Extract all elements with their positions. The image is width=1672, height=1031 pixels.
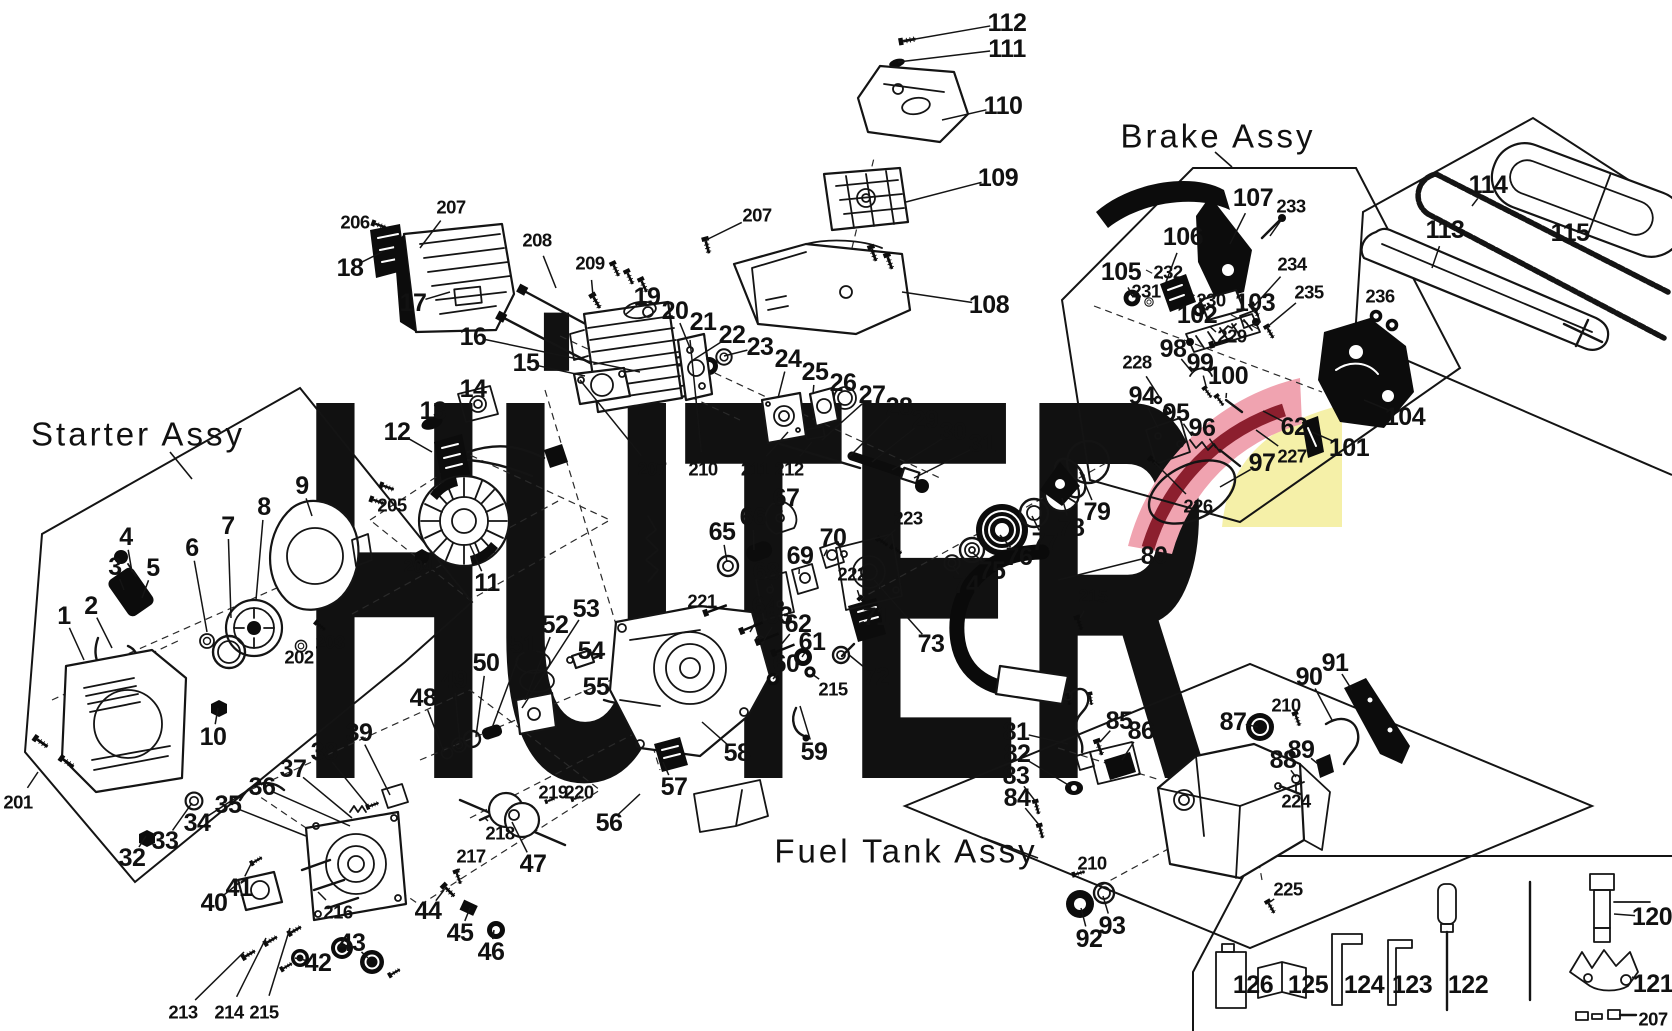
part-label-43: 43 [339, 929, 366, 957]
part-label-23: 23 [747, 333, 774, 361]
part-label-77: 77 [1032, 528, 1059, 556]
part-label-125: 125 [1288, 971, 1329, 999]
part-label-228: 228 [1122, 352, 1152, 373]
part-label-87: 87 [1220, 708, 1247, 736]
part-label-6: 6 [185, 534, 198, 562]
part-label-216: 216 [323, 902, 353, 923]
part-label-14: 14 [460, 375, 487, 403]
part-label-11: 11 [474, 569, 500, 597]
part-label-207: 207 [436, 197, 466, 218]
part-label-26: 26 [830, 369, 857, 397]
part-label-70: 70 [820, 524, 847, 552]
part-label-126: 126 [1233, 971, 1273, 999]
bracket-90 [1326, 719, 1358, 764]
part-label-20: 20 [662, 297, 689, 325]
part-label-27: 27 [859, 381, 886, 409]
part-label-51: 51 [510, 631, 537, 659]
part-label-210: 210 [1077, 853, 1107, 874]
part-label-84: 84 [1004, 784, 1031, 812]
part-label-86: 86 [1128, 717, 1155, 745]
part-label-35: 35 [215, 791, 242, 819]
nut-10 [211, 700, 227, 717]
part-label-107: 107 [1233, 184, 1273, 212]
leader-line-111 [898, 51, 990, 62]
part-label-40: 40 [201, 889, 228, 917]
part-label-226: 226 [1183, 496, 1213, 517]
part-label-209: 209 [575, 253, 605, 274]
part-label-12: 12 [384, 418, 411, 446]
part-label-3: 3 [108, 553, 121, 581]
leader-line-25 [813, 385, 814, 394]
clip-89 [1316, 754, 1334, 778]
part-label-30: 30 [940, 418, 967, 446]
part-label-32: 32 [119, 844, 146, 872]
starter-cover-1 [62, 650, 186, 792]
leader-line-112 [904, 26, 990, 41]
screws-207-toolbox [1576, 1010, 1636, 1020]
part-label-201: 201 [3, 792, 33, 813]
leader-line-207 [706, 222, 742, 240]
part-label-9: 9 [295, 472, 308, 500]
screw-213 [240, 948, 256, 961]
part-label-13: 13 [420, 397, 447, 425]
crankcase-half-35 [306, 812, 406, 920]
part-label-115: 115 [1551, 219, 1590, 247]
washer-6 [200, 634, 214, 648]
part-label-218: 218 [485, 823, 515, 844]
part-label-76: 76 [1006, 543, 1033, 571]
part-label-205: 205 [377, 495, 407, 516]
leader-line-8 [256, 520, 263, 600]
part-label-121: 121 [1633, 970, 1672, 998]
part-label-16: 16 [460, 323, 487, 351]
part-label-4: 4 [119, 523, 133, 551]
part-label-203: 203 [315, 632, 345, 653]
washers-236 [1370, 310, 1383, 323]
part-label-69: 69 [787, 542, 814, 570]
part-label-22: 22 [719, 321, 746, 349]
part-label-49: 49 [441, 666, 468, 694]
part-label-45: 45 [447, 919, 474, 947]
buffer-87 [1246, 713, 1274, 741]
part-label-62: 62 [1281, 413, 1308, 441]
part-label-215: 215 [1078, 586, 1108, 607]
part-label-38: 38 [311, 738, 338, 766]
part-label-217: 217 [456, 846, 486, 867]
leader-line-90 [1315, 688, 1332, 720]
part-label-80: 80 [1141, 542, 1168, 570]
part-label-112: 112 [988, 9, 1027, 37]
leader-line-35 [240, 810, 306, 836]
part-label-31: 31 [969, 430, 996, 458]
part-label-98: 98 [1160, 335, 1187, 363]
part-label-120: 120 [1632, 903, 1672, 931]
part-label-233: 233 [1276, 196, 1306, 217]
part-label-211: 211 [741, 459, 770, 480]
leader-line-1 [69, 628, 84, 660]
assembly-label-2: Fuel Tank Assy [774, 833, 1037, 870]
leader-line-109 [906, 182, 982, 202]
part-label-122: 122 [1448, 971, 1488, 999]
part-label-104: 104 [1385, 403, 1426, 431]
part-label-2: 2 [84, 592, 97, 620]
part-label-207: 207 [742, 205, 772, 226]
part-label-71: 71 [863, 603, 890, 631]
part-label-108: 108 [969, 291, 1010, 319]
part-label-210: 210 [1271, 695, 1301, 716]
screw-225 [1264, 898, 1277, 914]
part-label-55: 55 [583, 673, 610, 701]
part-label-231: 231 [1131, 281, 1161, 302]
bar-chain-group [1362, 134, 1672, 350]
part-label-41: 41 [226, 874, 253, 902]
part-label-220: 220 [564, 782, 594, 803]
leader-line-214 [237, 938, 266, 997]
exploded-parts-diagram: HÜTER [0, 0, 1672, 1031]
part-label-57: 57 [661, 773, 688, 801]
part-label-68: 68 [753, 558, 780, 586]
part-label-28: 28 [886, 393, 913, 421]
part-label-10: 10 [200, 723, 227, 751]
part-label-52: 52 [542, 611, 569, 639]
part-label-97: 97 [1249, 449, 1276, 477]
part-label-207: 207 [1638, 1009, 1668, 1030]
part-label-25: 25 [802, 358, 829, 386]
part-label-103: 103 [1235, 289, 1275, 317]
part-label-95: 95 [1163, 399, 1190, 427]
part-label-109: 109 [978, 164, 1018, 192]
screw-201 [32, 734, 50, 750]
part-label-223: 223 [893, 508, 923, 529]
part-label-58: 58 [724, 739, 751, 767]
part-label-67: 67 [773, 484, 800, 512]
part-label-5: 5 [146, 554, 160, 582]
diagram-canvas: HÜTER [0, 0, 1672, 1031]
part-label-17: 17 [400, 289, 427, 317]
part-label-36: 36 [249, 773, 276, 801]
part-label-227: 227 [1277, 446, 1307, 467]
part-label-89: 89 [1288, 736, 1315, 764]
huter-watermark: HÜTER [299, 286, 1214, 894]
part-label-47: 47 [520, 850, 547, 878]
part-label-101: 101 [1329, 434, 1370, 462]
part-label-50: 50 [473, 649, 500, 677]
part-label-91: 91 [1322, 649, 1349, 677]
leader-line-114 [1472, 199, 1478, 206]
part-label-222: 222 [837, 564, 867, 585]
part-label-46: 46 [478, 938, 505, 966]
leader-line-2 [97, 618, 112, 648]
part-label-96: 96 [1189, 414, 1216, 442]
part-label-1: 1 [57, 602, 71, 630]
air-filter-cover-110 [858, 66, 968, 142]
part-label-235: 235 [1294, 282, 1324, 303]
part-label-72: 72 [863, 663, 890, 691]
part-label-215: 215 [249, 1002, 279, 1023]
part-label-42: 42 [305, 949, 332, 977]
part-label-232: 232 [1153, 262, 1183, 283]
part-label-59: 59 [801, 738, 828, 766]
part-label-7: 7 [221, 512, 234, 540]
part-label-75: 75 [979, 557, 1006, 585]
part-label-65: 65 [709, 518, 736, 546]
buffer-45 [460, 900, 478, 916]
part-label-18: 18 [337, 254, 364, 282]
part-label-54: 54 [578, 637, 605, 665]
part-label-93: 93 [1099, 912, 1126, 940]
top-cover-108 [734, 244, 910, 334]
part-label-37: 37 [280, 755, 307, 783]
part-label-124: 124 [1344, 971, 1385, 999]
part-label-8: 8 [257, 493, 271, 521]
part-label-202: 202 [284, 647, 314, 668]
part-label-230: 230 [1196, 290, 1226, 311]
air-filter-group [824, 35, 968, 230]
assembly-label-0: Starter Assy [31, 416, 245, 453]
part-label-229: 229 [1217, 326, 1247, 347]
part-label-19: 19 [634, 283, 661, 311]
leader-line-208 [543, 256, 556, 288]
part-label-111: 111 [988, 35, 1026, 63]
part-label-204: 204 [403, 556, 434, 577]
part-label-64: 64 [752, 592, 779, 620]
assembly-label-1: Brake Assy [1120, 118, 1315, 155]
piston-50 [516, 693, 556, 734]
screw-207-top [701, 236, 712, 254]
part-label-44: 44 [415, 897, 442, 925]
screw-100 [1213, 393, 1225, 407]
part-label-206: 206 [340, 212, 370, 233]
part-label-221: 221 [687, 591, 717, 612]
fan-housing-9 [270, 501, 358, 610]
part-label-53: 53 [573, 595, 600, 623]
part-label-210: 210 [688, 459, 718, 480]
part-label-236: 236 [1365, 286, 1395, 307]
part-label-33: 33 [152, 827, 179, 855]
cap-31 [915, 479, 929, 493]
part-label-106: 106 [1163, 223, 1203, 251]
part-label-212: 212 [774, 459, 804, 480]
part-label-234: 234 [1277, 254, 1308, 275]
part-label-225: 225 [1273, 879, 1303, 900]
part-label-29: 29 [912, 406, 939, 434]
part-label-110: 110 [984, 92, 1023, 120]
seal-33 [186, 793, 203, 810]
leader-line-201 [27, 772, 38, 788]
part-label-39: 39 [346, 719, 373, 747]
part-label-114: 114 [1469, 171, 1508, 199]
part-label-60: 60 [773, 650, 800, 678]
leader-line-7 [228, 539, 231, 618]
part-label-73: 73 [918, 630, 945, 658]
part-label-24: 24 [775, 345, 802, 373]
part-label-56: 56 [596, 809, 623, 837]
part-label-21: 21 [690, 308, 717, 336]
part-label-90: 90 [1296, 663, 1323, 691]
part-label-100: 100 [1208, 362, 1248, 390]
part-label-15: 15 [513, 349, 540, 377]
leader-line-66 [753, 530, 754, 550]
part-label-74: 74 [953, 571, 980, 599]
part-label-208: 208 [522, 230, 552, 251]
part-label-123: 123 [1392, 971, 1432, 999]
part-label-78: 78 [1058, 514, 1085, 542]
toolbox-panel [1193, 856, 1672, 1031]
part-label-224: 224 [1281, 791, 1312, 812]
part-label-113: 113 [1426, 216, 1465, 244]
part-label-34: 34 [184, 809, 211, 837]
leader-line-213 [195, 952, 244, 1000]
part-label-215: 215 [818, 679, 848, 700]
part-label-213: 213 [168, 1002, 198, 1023]
part-label-48: 48 [410, 684, 437, 712]
part-label-66: 66 [740, 503, 767, 531]
part-label-214: 214 [214, 1002, 245, 1023]
part-label-207: 207 [637, 459, 667, 480]
part-label-79: 79 [1084, 498, 1111, 526]
